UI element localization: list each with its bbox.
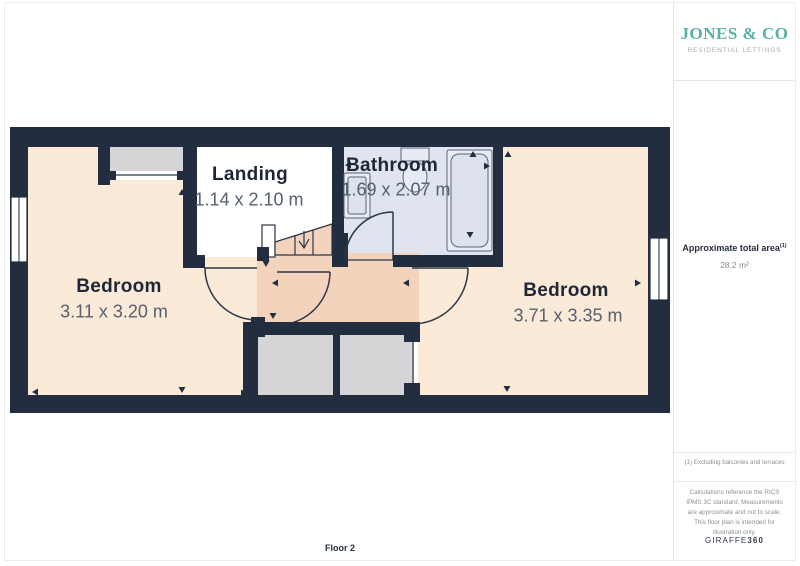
brand-name: JONES & CO [674, 24, 795, 44]
window-left [11, 197, 27, 262]
floorplan-page: Bedroom 3.11 x 3.20 m Landing 1.14 x 2.1… [0, 0, 800, 566]
room-dims-bathroom: 1.69 x 2.07 m [341, 180, 450, 201]
window-right [650, 238, 668, 300]
room-name-bedroom-right: Bedroom [523, 280, 609, 302]
divider-line [674, 452, 795, 453]
total-area-value: 28.2 m² [674, 260, 795, 270]
floor-label: Floor 2 [10, 543, 670, 553]
brand-logo: JONES & CO RESIDENTIAL LETTINGS [674, 24, 795, 54]
room-name-bedroom-left: Bedroom [76, 276, 162, 298]
total-area-block: Approximate total area(1) 28.2 m² [674, 243, 795, 270]
room-dims-landing: 1.14 x 2.10 m [194, 190, 303, 211]
watermark-brand: GIRAFFE [705, 536, 747, 545]
total-area-title: Approximate total area(1) [674, 243, 795, 253]
room-name-landing: Landing [212, 164, 288, 186]
divider-line [674, 481, 795, 482]
room-dims-bedroom-right: 3.71 x 3.35 m [513, 306, 622, 327]
floorplan-drawing [10, 127, 670, 413]
brand-tagline: RESIDENTIAL LETTINGS [674, 47, 795, 54]
room-dims-bedroom-left: 3.11 x 3.20 m [60, 302, 168, 323]
sidebar: JONES & CO RESIDENTIAL LETTINGS Approxim… [674, 0, 795, 566]
giraffe360-watermark: GIRAFFE360 [674, 536, 795, 545]
total-area-note-ref: (1) [780, 243, 787, 249]
total-area-title-text: Approximate total area [682, 243, 780, 253]
disclaimer-text: Calculations reference the RICS IPMS 3C … [674, 488, 795, 538]
watermark-suffix: 360 [747, 536, 764, 545]
room-name-bathroom: Bathroom [346, 155, 438, 177]
floorplan-canvas [10, 127, 670, 413]
footnote: (1) Excluding balconies and terraces [674, 459, 795, 466]
divider-line [674, 80, 795, 81]
